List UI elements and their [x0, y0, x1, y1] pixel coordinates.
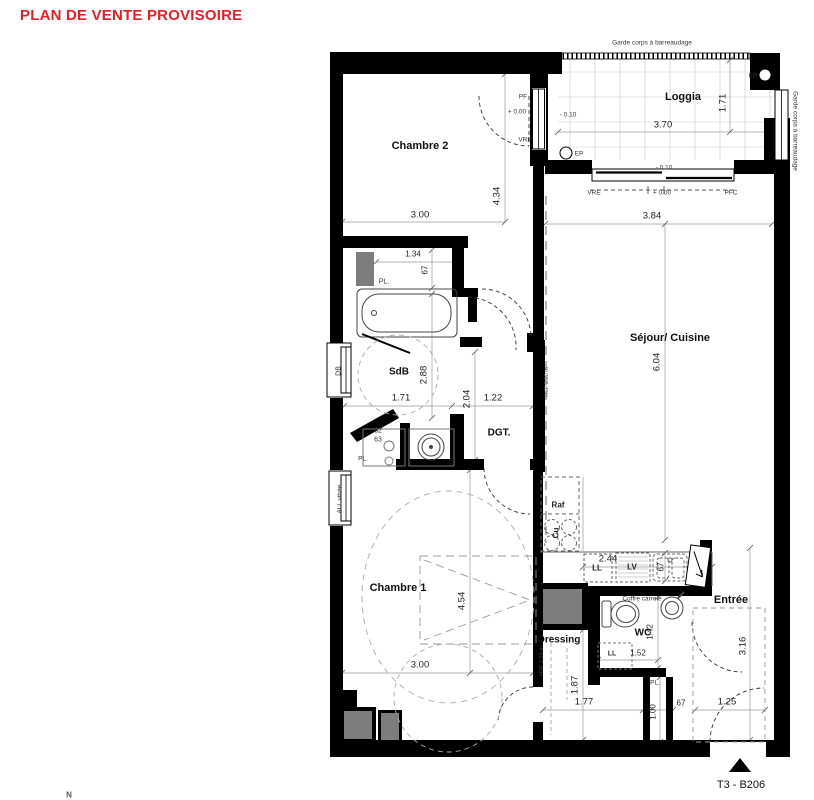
vre-label: VRE: [518, 137, 531, 144]
wall-openings: [330, 88, 766, 757]
dim-chambre2-width: 3.00: [411, 210, 430, 221]
washer-label-wc: LL: [608, 651, 617, 658]
dim-dgt-height: 2.04: [462, 390, 473, 409]
bed-outline: [420, 556, 536, 644]
bathtub: [357, 289, 457, 337]
level-minus: - 0.10: [560, 112, 577, 119]
railing-note-top: Garde corps à barreaudage: [612, 40, 692, 47]
entree-hsp-zone: [693, 608, 765, 742]
glazed-sill-label: ALL vitrée: [337, 484, 344, 513]
tiled-box-note: Coffre carrelé: [622, 596, 661, 603]
dim-sdb-width: 1.71: [392, 393, 411, 404]
ep-label: EP: [575, 151, 584, 158]
wc-washbasin: [661, 592, 684, 619]
dim-hall-length: 1.00: [649, 704, 658, 720]
toilet: [602, 601, 639, 627]
room-label-sdb: SdB: [389, 367, 409, 378]
dim-sejour-height: 6.04: [652, 353, 663, 372]
vre-label: VRE: [587, 190, 600, 197]
room-label-chambre1: Chambre 1: [370, 582, 427, 594]
dim-sejour-width: 3.84: [643, 211, 662, 222]
dim-loggia-height: 1.71: [718, 94, 729, 113]
fridge-label: Raf: [552, 501, 565, 510]
kitchen-appliances: [540, 477, 712, 586]
north-indicator: N: [66, 791, 72, 800]
ceiling-height-note: HSP 2.20 m: [544, 367, 550, 397]
dim-chambre1-width: 3.00: [411, 660, 430, 671]
closet-label: PL.: [379, 279, 390, 286]
level-zero: + 0.00: [508, 109, 526, 116]
pf-label: PF: [519, 94, 527, 101]
room-label-entree: Entrée: [714, 594, 748, 606]
pfc-label: PFC: [725, 190, 738, 197]
dishwasher-label: LV: [627, 563, 637, 572]
dim-entree-height: 3.16: [738, 637, 749, 656]
dim-kitchen-depth: 67: [657, 563, 666, 572]
unit-reference: T3 - B206: [717, 779, 765, 791]
ep-pipes: [560, 69, 771, 159]
dim-dgt-width: 1.22: [484, 393, 503, 404]
ceiling-height-note: HSP 2.20 m: [539, 646, 545, 676]
dim-sdb-height: 2.88: [419, 366, 430, 385]
ep-pipe-icon: [560, 147, 572, 159]
dim-entree-width: 1.25: [718, 697, 737, 708]
closet-label: PL.: [358, 456, 368, 463]
room-label-dgt: DGT.: [488, 428, 511, 439]
dim-wc-height: 1.42: [646, 624, 655, 640]
closet-label: PL.: [650, 680, 660, 687]
ep-label: EP: [749, 73, 758, 80]
dim-loggia-width: 3.70: [654, 120, 673, 131]
washer-label: LL: [592, 564, 602, 573]
floor-plan-page: PLAN DE VENTE PROVISOIRE: [0, 0, 814, 800]
dim-closet-width: 1.34: [405, 250, 421, 259]
loggia-tile-grid: [558, 59, 774, 160]
walls: [330, 52, 790, 757]
dim-wc-width: 1.52: [630, 649, 646, 658]
db-label: DB: [336, 366, 343, 376]
railing-note-right: Garde corps à barreaudage: [792, 91, 799, 171]
room-label-loggia: Loggia: [665, 91, 701, 103]
dim-hall-width: 67: [677, 699, 686, 708]
dim-dressing-width: 1.77: [575, 697, 594, 708]
entrance-triangle: [729, 758, 751, 772]
level-minus: - 0.10: [656, 165, 673, 172]
dim-chambre2-height: 4.34: [492, 187, 503, 206]
cooktop-label: Cu: [552, 528, 561, 539]
dim-closet-depth: 67: [421, 266, 430, 275]
dim-cupboard-depth: 63: [374, 437, 382, 444]
room-label-sejour-cuisine: Séjour/ Cuisine: [630, 332, 710, 344]
dim-chambre1-height: 4.54: [457, 592, 468, 611]
level-zero: + 0.00: [653, 190, 671, 197]
door-arcs: [468, 96, 764, 742]
ep-pipe-icon: [759, 69, 771, 81]
dim-cupboard-width: 62: [374, 428, 382, 435]
room-label-chambre2: Chambre 2: [392, 140, 449, 152]
dim-dressing-height: 1.87: [570, 676, 581, 695]
room-label-dressing: Dressing: [538, 635, 581, 646]
